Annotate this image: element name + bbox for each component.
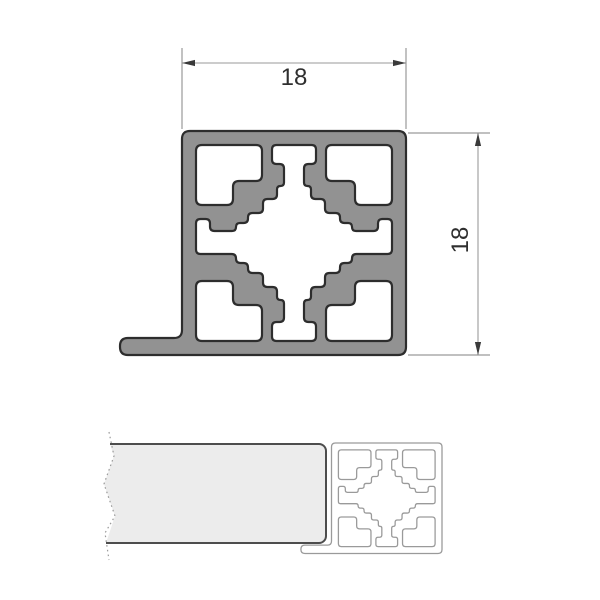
panel-fill (104, 444, 326, 543)
profile-cavity-set (196, 145, 392, 341)
technical-drawing-page: 18 18 (0, 0, 600, 600)
dimension-height: 18 (408, 133, 490, 355)
profile-cavity-outlines (338, 450, 435, 547)
dimension-width: 18 (182, 48, 406, 129)
panel-side-view (104, 432, 326, 560)
profile-top-view (120, 131, 406, 355)
arrowhead-right-icon (393, 60, 406, 66)
profile-cross-section-view: 18 18 (120, 48, 490, 355)
arrowhead-left-icon (182, 60, 195, 66)
arrowhead-bottom-icon (475, 342, 481, 355)
dimension-width-label: 18 (281, 64, 308, 91)
assembly-side-view (104, 432, 442, 560)
dimension-height-label: 18 (447, 227, 474, 254)
arrowhead-top-icon (475, 133, 481, 146)
technical-drawing-canvas: 18 18 (0, 0, 600, 600)
